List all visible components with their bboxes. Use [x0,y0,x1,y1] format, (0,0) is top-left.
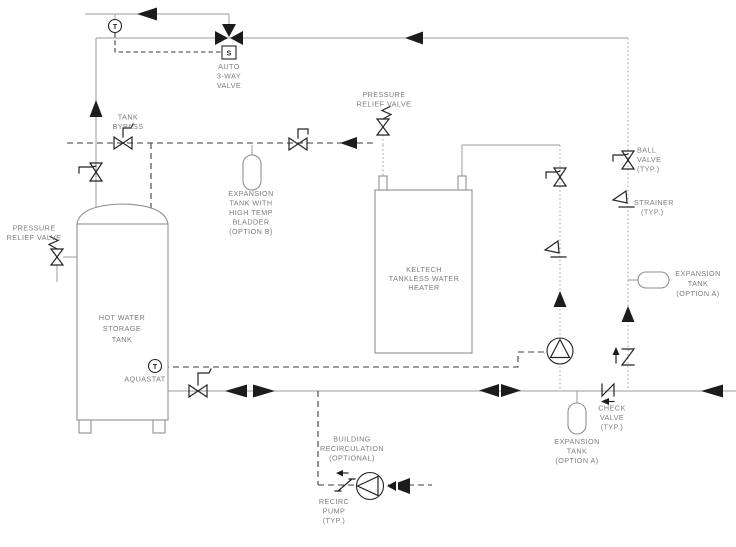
recirc-pump-label: (TYP.) [323,516,346,525]
3way-valve-label: AUTO [218,62,240,71]
strainer-icon [613,191,627,203]
tank-dome [77,204,168,224]
flow-arrow-left-icon [405,32,423,45]
flow-arrow-left-icon [225,385,247,398]
flow-arrow-up-icon [554,291,567,307]
expansion-b-label: (OPTION B) [229,227,273,236]
ball-valve-label: BALL [637,146,656,155]
hot-water-storage-tank: HOT WATER STORAGE TANK [77,204,168,433]
pump-icon [547,338,573,364]
loop-pump [547,338,573,364]
3way-valve-icon [215,31,228,45]
check-valve-vertical [613,347,635,365]
aquastat-to-pump-line [163,352,546,367]
loop-ball-valve [546,168,566,186]
ball-valve-icon [289,138,298,150]
pressure-relief-valve-top: PRESSURE RELIEF VALVE [357,90,412,145]
expansion-tank-right: EXPANSION TANK (OPTION A) [638,269,721,298]
tank-label: HOT WATER [99,313,145,322]
flow-arrow-left-icon [701,385,723,398]
ball-valve-label: (TYP.) [637,165,660,174]
relief-valve-icon [51,249,63,257]
flow-arrow-up-icon [90,100,103,117]
valve-handle-icon [298,129,308,138]
expansion-bottom-vessel [568,403,586,434]
flow-arrow-left-icon [398,478,410,494]
check-flow-arrow-left-icon [336,470,343,477]
3way-valve-label: VALVE [217,81,241,90]
recirc-pump-icon [357,473,384,500]
recirc-pump-label: RECIRC [319,497,349,506]
tank-label: STORAGE [103,324,141,333]
expansion-tank-bottom: EXPANSION TANK (OPTION A) [554,403,599,465]
diagram-canvas: HOT WATER STORAGE TANK KELTECH TANKLESS … [0,0,736,547]
flow-arrow-left-icon [137,8,157,21]
valve-handle-icon [79,166,96,173]
relief-valve-icon [377,127,389,135]
expansion-b-label: HIGH TEMP [229,208,273,217]
ball-valve-label: VALVE [637,155,661,164]
3way-valve-label: 3-WAY [217,72,241,81]
piping-diagram: HOT WATER STORAGE TANK KELTECH TANKLESS … [0,0,736,547]
tank-label: TANK [112,335,132,344]
pipe-heater-outlet [462,145,560,176]
tank-bypass-label: TANK [118,113,138,122]
expansion-right-label: EXPANSION [675,269,720,278]
aquastat-letter: T [153,364,158,371]
thermometer: T [109,14,122,33]
valve-handle-icon [198,369,211,385]
heater-label: HEATER [408,283,439,292]
flow-arrow-right-icon [501,384,521,397]
tank-body [77,224,168,420]
3way-valve-icon [222,24,236,37]
tankless-water-heater: KELTECH TANKLESS WATER HEATER [375,176,472,353]
expansion-right-label: TANK [688,279,708,288]
tank-bypass-label: BYPASS [113,122,144,131]
recirc-label: BUILDING [333,435,371,444]
tank-outlet-valve [189,369,211,397]
flow-arrow-left-icon [479,384,499,397]
check-flow-arrow-up-icon [613,347,620,355]
aquastat-label: AQUASTAT [124,375,165,384]
expansion-b-label: TANK WITH [229,199,272,208]
expansion-bottom-label: TANK [567,447,587,456]
heater-port-left [379,176,387,190]
flow-arrow-right-icon [253,385,275,398]
relief-valve-icon [377,119,389,127]
strainer-icon [545,241,559,253]
recirc-label: (OPTIONAL) [329,454,375,463]
3way-valve-icon [230,31,243,45]
prv-left-label: PRESSURE [12,224,55,233]
flow-arrow-up-icon [622,306,635,322]
expansion-right-vessel [638,272,669,288]
check-valve-label: VALVE [600,413,624,422]
check-valve-icon [602,384,614,396]
flow-arrow-left-icon [387,481,396,491]
auto-3way-valve: S AUTO 3-WAY VALVE [215,24,243,90]
tank-foot-left [79,420,91,433]
heater-port-right [458,176,466,190]
pressure-relief-valve-left: PRESSURE RELIEF VALVE [7,224,63,266]
heater-label: TANKLESS WATER [389,274,459,283]
thermometer-letter: T [113,24,118,31]
expansion-b-vessel [243,155,261,190]
heater-label: KELTECH [406,265,442,274]
strainer-label: STRAINER [634,198,674,207]
relief-valve-icon [51,257,63,265]
check-valve-label: (TYP.) [601,423,624,432]
flow-arrow-left-icon [340,137,357,149]
ball-valve-icon [298,138,307,150]
riser-ball-valve [79,163,102,181]
check-valve-label: CHECK [598,404,625,413]
expansion-bottom-label: (OPTION A) [555,456,598,465]
recirc-label: RECIRCULATION [320,444,384,453]
solenoid-letter: S [227,51,232,58]
prv-left-label: RELIEF VALVE [7,233,62,242]
strainer-right: STRAINER (TYP.) [613,191,674,217]
strainer-loop [545,241,566,257]
expansion-b-label: BLADDER [232,218,269,227]
expansion-b-label: EXPANSION [228,189,273,198]
prv-top-label: PRESSURE [362,90,405,99]
right-ball-valve: BALL VALVE (TYP.) [613,146,661,174]
tank-foot-right [153,420,165,433]
thermometer-to-solenoid-line [115,33,221,52]
strainer-label: (TYP.) [641,208,664,217]
bypass-ball-valve [289,129,308,150]
recirc-pump-label: PUMP [323,507,346,516]
building-recirculation: BUILDING RECIRCULATION (OPTIONAL) RECIRC… [319,435,410,526]
expansion-tank-option-b: EXPANSION TANK WITH HIGH TEMP BLADDER (O… [228,145,273,236]
expansion-right-label: (OPTION A) [676,289,719,298]
expansion-bottom-label: EXPANSION [554,437,599,446]
prv-top-label: RELIEF VALVE [357,100,412,109]
